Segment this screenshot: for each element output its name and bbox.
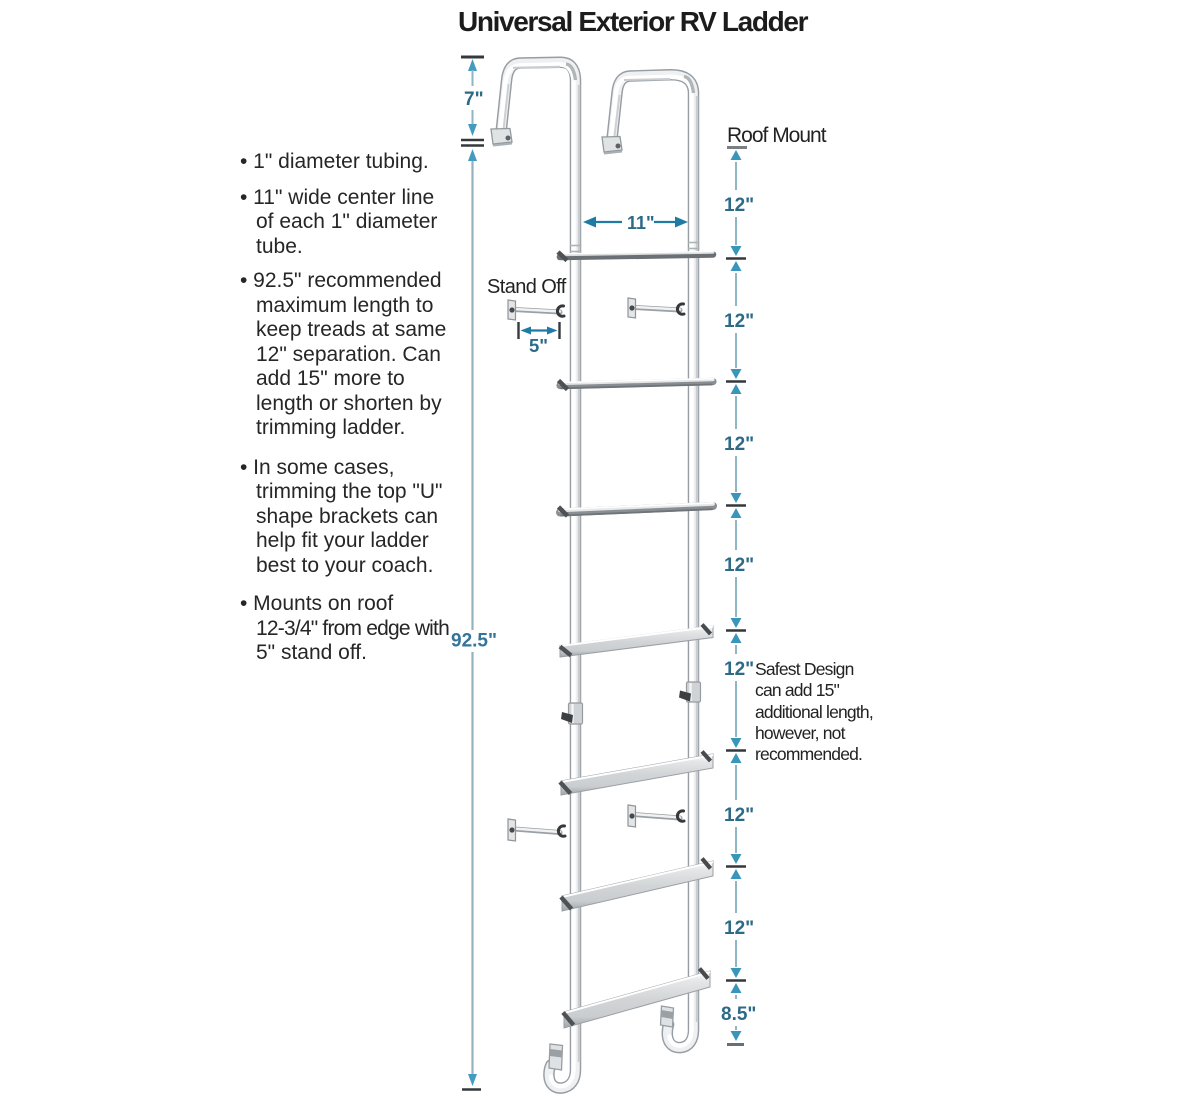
svg-text:12": 12" [724,555,754,576]
svg-text:12": 12" [724,659,754,680]
svg-text:12": 12" [724,918,754,939]
svg-text:92.5": 92.5" [451,631,497,652]
svg-text:11": 11" [627,213,655,233]
svg-text:12": 12" [724,311,754,332]
svg-text:7": 7" [464,89,484,110]
svg-text:12": 12" [724,805,754,826]
svg-text:5": 5" [529,335,548,356]
svg-text:12": 12" [724,195,754,216]
svg-text:8.5": 8.5" [721,1004,756,1025]
svg-text:12": 12" [724,434,754,455]
